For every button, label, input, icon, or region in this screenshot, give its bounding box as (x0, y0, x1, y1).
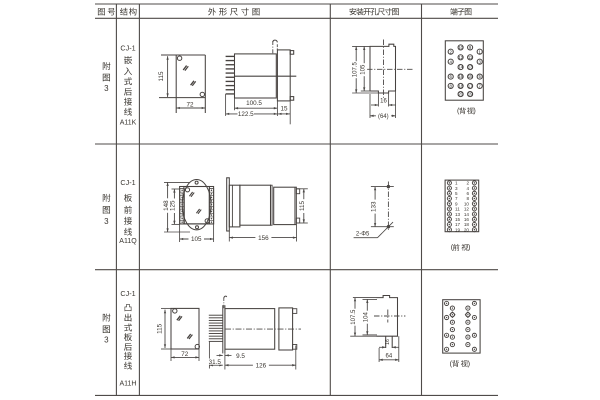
svg-text:16: 16 (380, 99, 387, 105)
svg-text:17: 17 (468, 84, 473, 89)
svg-text:133: 133 (370, 201, 377, 212)
svg-text:100.5: 100.5 (246, 100, 262, 107)
svg-text:): ) (473, 106, 475, 115)
svg-text:A11H: A11H (120, 381, 137, 388)
svg-text:19: 19 (455, 227, 461, 232)
svg-text:12: 12 (458, 55, 463, 60)
svg-text:20: 20 (458, 92, 463, 97)
svg-text:115: 115 (157, 323, 164, 334)
svg-text:18: 18 (458, 84, 463, 89)
svg-text:A11K: A11K (120, 119, 137, 126)
svg-text:10: 10 (458, 45, 463, 50)
svg-text:(64): (64) (378, 114, 389, 120)
svg-text:107.5: 107.5 (351, 309, 357, 325)
svg-text:3: 3 (104, 336, 109, 345)
svg-text:3: 3 (104, 217, 109, 226)
svg-text:14: 14 (458, 65, 463, 70)
svg-text:72: 72 (186, 101, 194, 108)
svg-text:115: 115 (158, 71, 165, 82)
svg-text:15: 15 (280, 106, 288, 113)
svg-text:16: 16 (458, 74, 463, 79)
svg-text:115: 115 (299, 200, 306, 211)
svg-text:107.5: 107.5 (352, 62, 358, 78)
svg-text:A11Q: A11Q (119, 238, 137, 245)
svg-text:31.5: 31.5 (209, 359, 222, 366)
svg-text:104: 104 (364, 312, 370, 323)
svg-text:13: 13 (468, 65, 473, 70)
svg-text:16: 16 (385, 339, 391, 345)
svg-text:9.5: 9.5 (236, 353, 245, 360)
svg-text:CJ-1: CJ-1 (120, 43, 135, 52)
svg-text:): ) (468, 243, 470, 252)
svg-text:72: 72 (181, 351, 189, 358)
svg-text:20: 20 (464, 227, 470, 232)
svg-text:11: 11 (468, 55, 473, 60)
svg-text:126: 126 (256, 362, 267, 369)
svg-text:105: 105 (191, 236, 202, 243)
svg-text:CJ-1: CJ-1 (120, 178, 135, 187)
svg-text:156: 156 (258, 235, 269, 242)
svg-text:19: 19 (468, 92, 473, 97)
svg-text:): ) (468, 359, 470, 368)
svg-text:64: 64 (386, 354, 393, 360)
svg-text:105: 105 (360, 64, 366, 75)
svg-text:3: 3 (104, 84, 109, 93)
svg-text:15: 15 (468, 74, 473, 79)
svg-text:2-Φ5: 2-Φ5 (356, 232, 370, 238)
svg-text:125: 125 (170, 200, 177, 211)
svg-text:CJ-1: CJ-1 (120, 289, 135, 298)
svg-text:122.5: 122.5 (238, 111, 254, 118)
